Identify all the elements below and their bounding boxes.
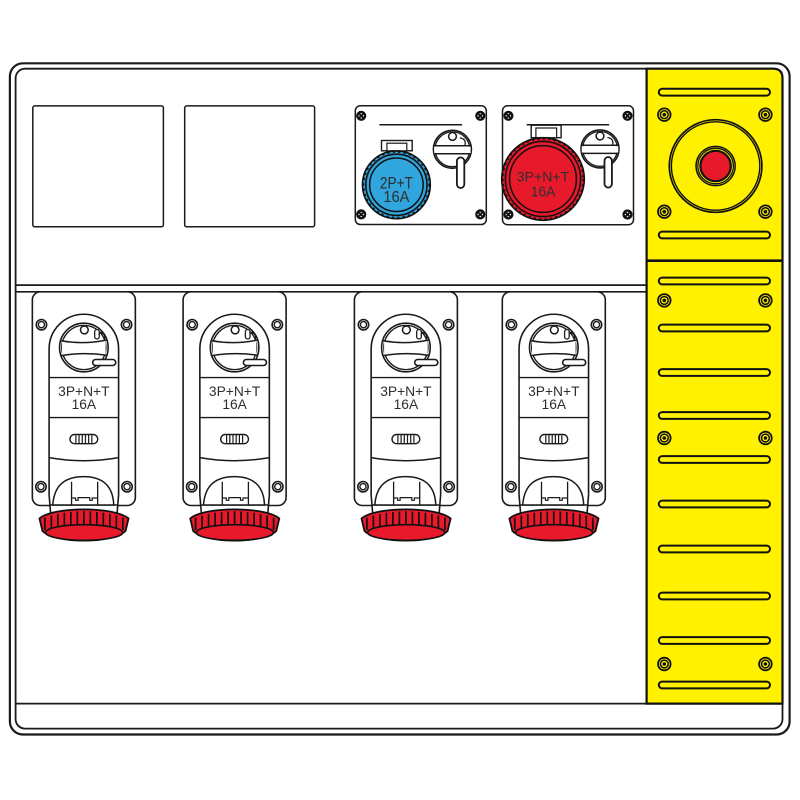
svg-text:16A: 16A bbox=[531, 185, 556, 201]
svg-text:3P+N+T: 3P+N+T bbox=[517, 170, 570, 185]
svg-text:16A: 16A bbox=[383, 189, 409, 206]
